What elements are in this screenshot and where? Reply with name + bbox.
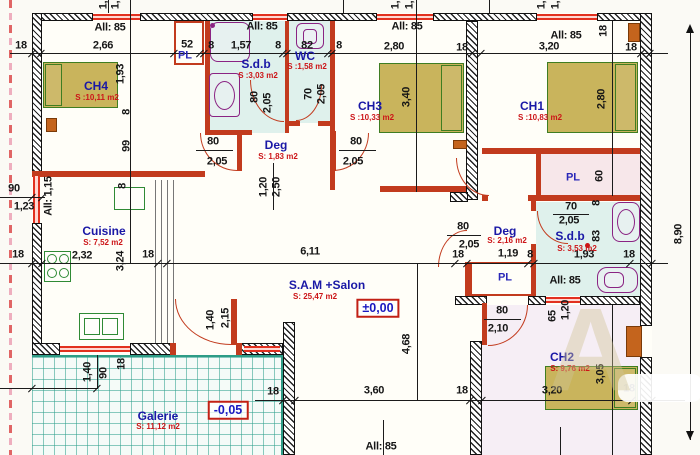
wall <box>528 296 546 305</box>
room-label: S.d.b <box>241 58 270 70</box>
dimension-label: 18 <box>15 41 27 52</box>
dimension-label: 18 <box>456 43 468 54</box>
partition-wall <box>170 343 176 355</box>
closet-label: PL <box>498 273 512 284</box>
dimension-label: All: 85 <box>551 31 582 42</box>
dimension-label: 2,10 <box>488 324 508 335</box>
dimension-label: 2,05 <box>317 84 328 104</box>
partition-wall <box>285 21 289 133</box>
window <box>537 14 597 20</box>
dimension-label: 6,11 <box>300 247 320 258</box>
dim-line <box>447 235 481 236</box>
arrow-icon <box>686 24 694 33</box>
partition-wall <box>32 171 205 177</box>
dimension-label: All: 1,15 <box>44 176 55 216</box>
dimension-label: 1, <box>537 1 548 10</box>
marker-dot <box>210 23 215 28</box>
watermark: A <box>548 282 633 418</box>
dim-line <box>489 0 490 13</box>
window <box>244 346 280 352</box>
room-label: Galerie <box>138 410 179 422</box>
dim-line <box>0 263 668 264</box>
room-label: WC <box>295 50 315 62</box>
dimension-label: 70 <box>565 202 577 213</box>
room-area-label: S :1,58 m2 <box>287 63 327 71</box>
partition-wall <box>237 131 242 171</box>
dim-line <box>130 0 131 263</box>
pillow <box>615 64 636 131</box>
partition-wall <box>482 303 487 345</box>
dimension-label: 2,66 <box>93 41 113 52</box>
level-badge: -0,05 <box>208 401 249 420</box>
nightstand <box>46 118 57 132</box>
dim-line <box>343 0 344 13</box>
dimension-label: 8 <box>592 200 603 206</box>
dimension-label: 70 <box>304 88 315 100</box>
dimension-label: 8 <box>118 183 129 189</box>
dimension-label: 80 <box>457 222 469 233</box>
dimension-label: 2,05 <box>343 157 363 168</box>
room-area-label: S: 11,12 m2 <box>136 423 180 431</box>
dimension-label: 1,93 <box>116 64 127 84</box>
floor-plan: A 182,665281,5788282,80183,2018All: 85Al… <box>0 0 700 455</box>
dimension-label: 1, <box>99 1 110 10</box>
dimension-label: 1, <box>111 1 122 10</box>
dimension-label: All: 85 <box>392 22 423 33</box>
dim-line <box>612 21 613 196</box>
room-label: Cuisine <box>82 225 125 237</box>
dimension-label: 1,40 <box>83 362 94 382</box>
dimension-label: 8 <box>336 41 342 52</box>
counter-line <box>155 180 156 343</box>
nightstand <box>453 140 467 149</box>
partition-wall <box>528 195 640 201</box>
wall <box>450 192 468 202</box>
dimension-label: 2,05 <box>559 216 579 227</box>
wall <box>640 13 652 326</box>
dimension-label: 2,05 <box>207 157 227 168</box>
dimension-label: All: 85 <box>247 22 278 33</box>
dimension-label: 8 <box>208 41 214 52</box>
dimension-label: 1,23 <box>14 202 34 213</box>
dimension-label: 2,32 <box>72 251 92 262</box>
partition-wall <box>536 154 541 195</box>
dim-line <box>560 427 561 455</box>
dimension-label: 60 <box>595 170 606 182</box>
room-label: CH3 <box>358 100 382 112</box>
dimension-label: 18 <box>117 358 128 370</box>
wall <box>130 343 172 355</box>
closet-label: PL <box>178 51 192 62</box>
room-label: Deg <box>265 139 288 151</box>
dimension-label: 18 <box>599 25 610 37</box>
dimension-label: 18 <box>452 250 464 261</box>
washbasin-bowl <box>617 209 635 235</box>
wall <box>283 322 295 455</box>
dim-line <box>0 197 45 198</box>
dimension-label: 18 <box>142 250 154 261</box>
arrow-icon <box>686 431 694 440</box>
dimension-label: 3,60 <box>364 386 384 397</box>
partition-wall <box>231 299 237 345</box>
dimension-label: 18 <box>267 387 279 398</box>
room-area-label: S: 1,83 m2 <box>258 153 298 161</box>
dimension-label: 90 <box>8 184 20 195</box>
room-area-label: S: 3,53 m2 <box>557 245 597 253</box>
burner <box>47 268 57 278</box>
room-area-label: S: 25,47 m2 <box>293 293 337 301</box>
wall <box>640 357 652 455</box>
room-area-label: S :10,33 m2 <box>350 114 394 122</box>
wall <box>32 343 60 355</box>
dim-line <box>0 388 98 389</box>
floor-pl-closet <box>541 154 640 195</box>
closet-label: PL <box>566 173 580 184</box>
dimension-label: All: 85 <box>366 442 397 453</box>
dimension-label: 8 <box>527 250 533 261</box>
dimension-label: 80 <box>350 137 362 148</box>
dimension-label: 80 <box>496 306 508 317</box>
dimension-label: 18 <box>623 250 635 261</box>
washbasin-bowl <box>214 81 235 110</box>
property-line <box>9 0 12 455</box>
nightstand <box>628 23 640 42</box>
window <box>60 346 130 352</box>
window <box>377 14 433 20</box>
room-area-label: S :10,11 m2 <box>75 94 119 102</box>
room-label: CH4 <box>84 80 108 92</box>
wall <box>287 13 377 21</box>
dimension-label: 80 <box>250 91 261 103</box>
wall <box>32 223 42 355</box>
dimension-label: 1,57 <box>231 41 251 52</box>
room-label: S.A.M +Salon <box>289 279 365 291</box>
dim-line <box>10 53 668 54</box>
partition-wall <box>482 148 640 154</box>
dimension-label: 8,90 <box>674 224 685 244</box>
dimension-label: 18 <box>456 386 468 397</box>
dimension-label: 90 <box>99 367 110 379</box>
dim-line <box>196 150 233 151</box>
dimension-label: 99 <box>122 140 133 152</box>
dimension-label: 2,80 <box>597 89 608 109</box>
room-label: S.d.b <box>555 230 584 242</box>
window <box>253 14 287 20</box>
partition-wall <box>318 121 335 126</box>
room-area-label: S :10,83 m2 <box>518 114 562 122</box>
counter-line <box>173 180 174 343</box>
dimension-label: 1,20 <box>259 177 270 197</box>
dimension-label: 1, <box>391 1 402 10</box>
dimension-label: 1, <box>405 1 416 10</box>
pillow <box>441 65 462 131</box>
dimension-label: 18 <box>625 43 637 54</box>
dimension-label: 4,68 <box>402 334 413 354</box>
dimension-label: 1,40 <box>206 310 217 330</box>
room-label: CH1 <box>520 100 544 112</box>
window <box>93 14 140 20</box>
wall <box>32 13 42 176</box>
room-area-label: S: 2,16 m2 <box>487 237 527 245</box>
dimension-label: 2,50 <box>272 177 283 197</box>
dim-line <box>339 150 376 151</box>
room-area-label: S: 7,52 m2 <box>83 239 123 247</box>
partition-wall <box>289 121 300 126</box>
burner <box>59 268 69 278</box>
partition-wall <box>380 186 466 192</box>
pillow <box>45 64 62 106</box>
dimension-label: 80 <box>207 137 219 148</box>
dimension-label: 18 <box>12 250 24 261</box>
dim-line <box>484 319 521 320</box>
dimension-label: 83 <box>592 230 603 242</box>
room-area-label: S :3,03 m2 <box>238 72 278 80</box>
dim-line <box>417 263 418 401</box>
dimension-label: 2,05 <box>263 93 274 113</box>
sink-bowl <box>102 318 118 335</box>
dimension-label: 2,15 <box>221 308 232 328</box>
wall <box>140 13 253 21</box>
level-badge: ±0,00 <box>356 299 399 318</box>
dimension-label: 1, <box>551 1 562 10</box>
dimension-label: 8 <box>275 41 281 52</box>
sink-bowl <box>84 318 100 335</box>
wall <box>433 13 537 21</box>
dimension-label: 3,20 <box>539 42 559 53</box>
dimension-label: 3,24 <box>116 251 127 271</box>
dimension-label: 2,80 <box>384 42 404 53</box>
dimension-label: All: 85 <box>95 23 126 34</box>
dimension-label: 8 <box>122 109 133 115</box>
partition-wall <box>531 196 536 211</box>
dimension-label: 1,19 <box>498 249 518 260</box>
dimension-label: 2,05 <box>459 240 479 251</box>
dimension-label: 3,40 <box>402 87 413 107</box>
